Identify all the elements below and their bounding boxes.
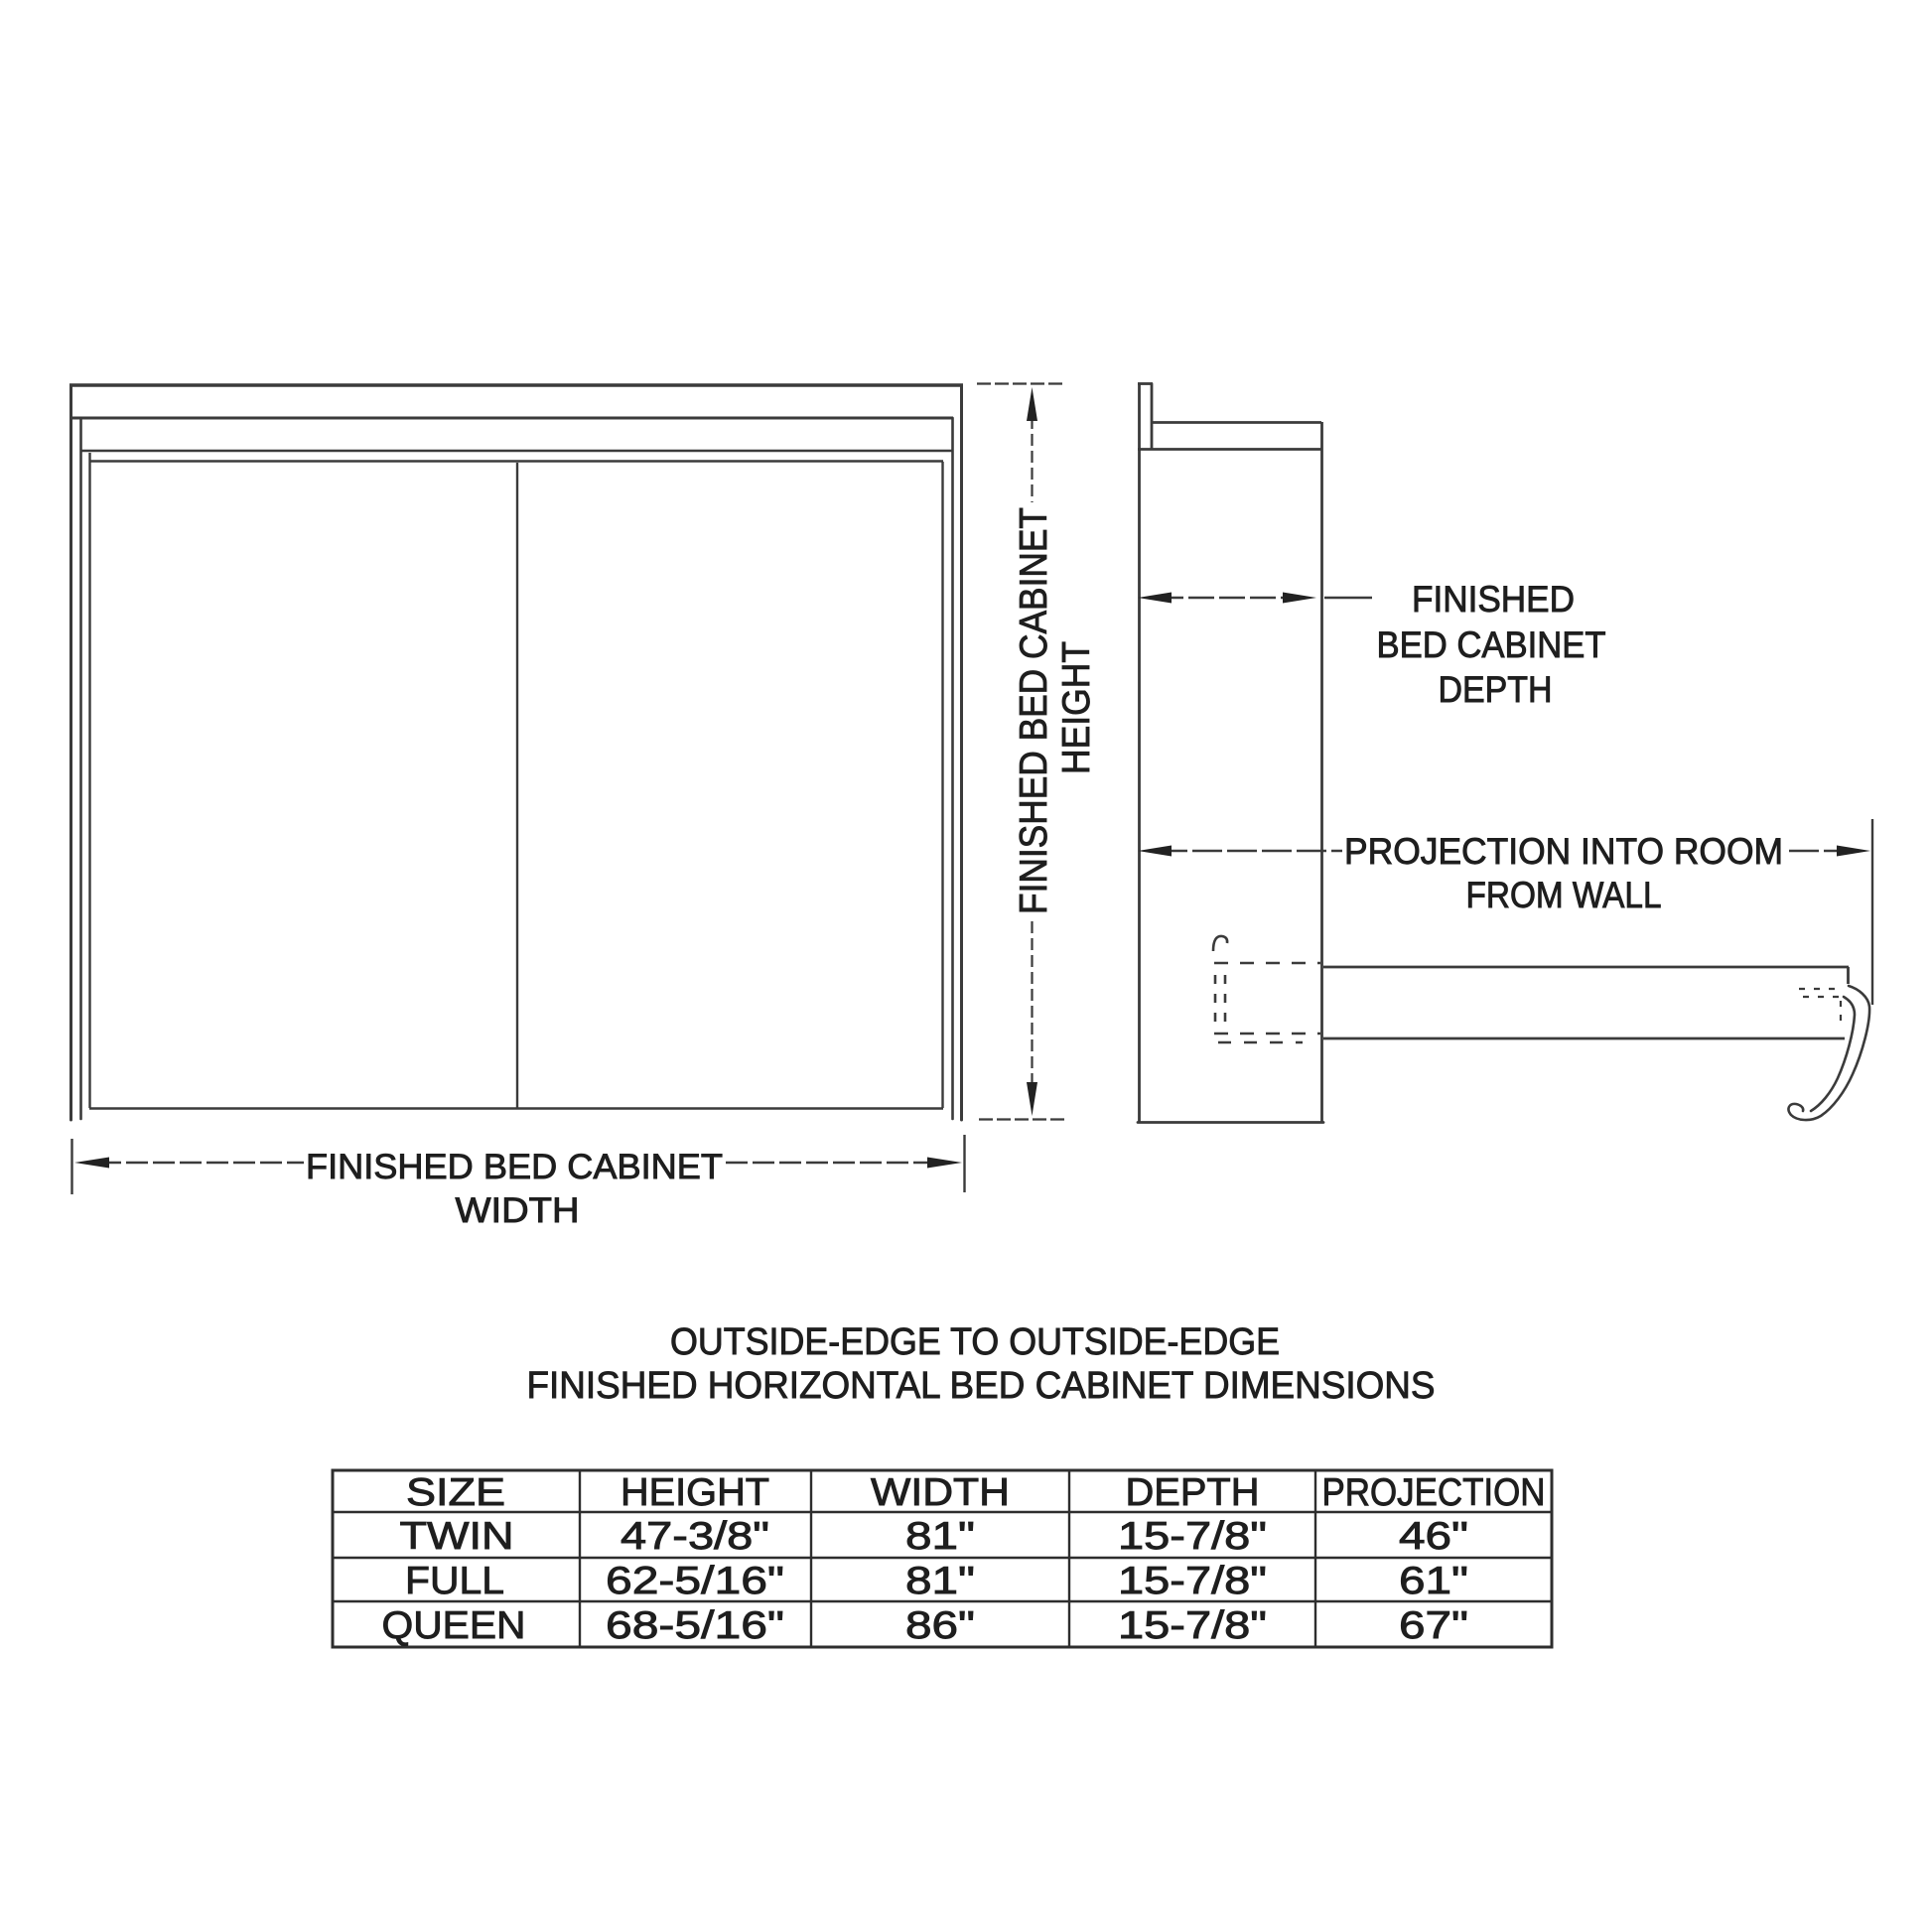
svg-text:DEPTH: DEPTH [1126, 1471, 1260, 1514]
svg-text:67": 67" [1399, 1604, 1468, 1647]
svg-text:DEPTH: DEPTH [1439, 669, 1553, 710]
svg-text:PROJECTION INTO ROOM: PROJECTION INTO ROOM [1344, 831, 1783, 872]
svg-text:HEIGHT: HEIGHT [621, 1471, 769, 1514]
svg-text:FINISHED HORIZONTAL BED CABINE: FINISHED HORIZONTAL BED CABINET DIMENSIO… [527, 1365, 1436, 1407]
svg-text:46": 46" [1399, 1515, 1468, 1558]
svg-text:BED CABINET: BED CABINET [1377, 624, 1606, 665]
svg-text:QUEEN: QUEEN [382, 1604, 526, 1647]
svg-text:WIDTH: WIDTH [871, 1471, 1010, 1514]
svg-text:15-7/8": 15-7/8" [1118, 1604, 1267, 1647]
svg-text:61": 61" [1399, 1560, 1468, 1602]
svg-text:86": 86" [905, 1604, 975, 1647]
svg-text:PROJECTION: PROJECTION [1322, 1471, 1546, 1514]
svg-text:TWIN: TWIN [400, 1515, 514, 1558]
svg-text:81": 81" [905, 1515, 975, 1558]
svg-text:15-7/8": 15-7/8" [1118, 1515, 1267, 1558]
svg-text:15-7/8": 15-7/8" [1118, 1560, 1267, 1602]
svg-text:62-5/16": 62-5/16" [606, 1560, 784, 1602]
svg-text:FROM WALL: FROM WALL [1466, 875, 1662, 915]
svg-text:FULL: FULL [405, 1560, 504, 1602]
svg-text:68-5/16": 68-5/16" [606, 1604, 784, 1647]
svg-text:SIZE: SIZE [406, 1471, 505, 1514]
svg-text:HEIGHT: HEIGHT [1055, 641, 1098, 774]
svg-text:FINISHED BED CABINET: FINISHED BED CABINET [1013, 507, 1055, 914]
svg-text:FINISHED BED CABINET: FINISHED BED CABINET [306, 1148, 723, 1186]
svg-text:WIDTH: WIDTH [456, 1191, 580, 1230]
svg-text:FINISHED: FINISHED [1412, 579, 1575, 620]
svg-text:OUTSIDE-EDGE TO OUTSIDE-EDGE: OUTSIDE-EDGE TO OUTSIDE-EDGE [670, 1321, 1280, 1363]
svg-text:47-3/8": 47-3/8" [621, 1515, 769, 1558]
svg-text:81": 81" [905, 1560, 975, 1602]
